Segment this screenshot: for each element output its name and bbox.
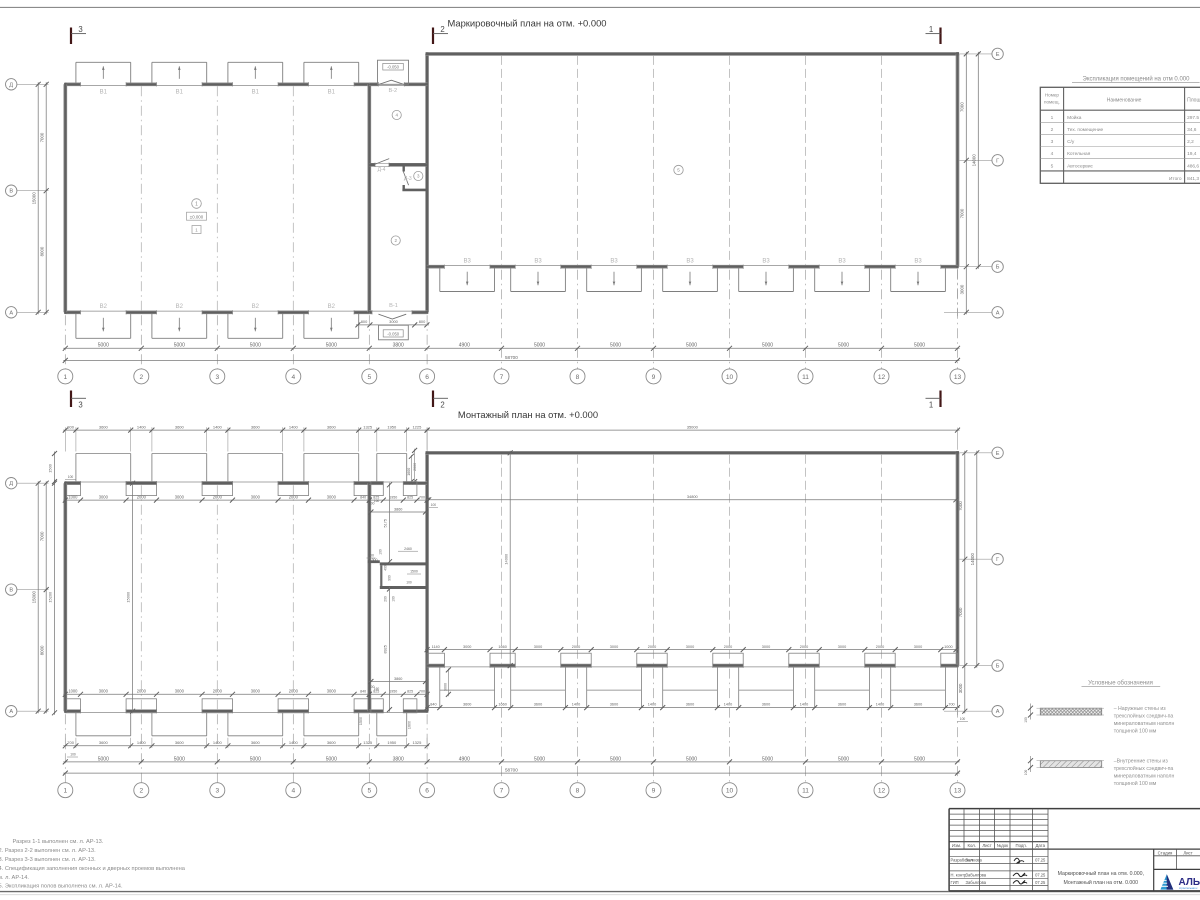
svg-text:Дата: Дата bbox=[1035, 843, 1045, 848]
svg-text:58700: 58700 bbox=[505, 768, 518, 773]
svg-text:100: 100 bbox=[960, 717, 966, 721]
svg-text:15000: 15000 bbox=[31, 192, 36, 205]
svg-text:3600: 3600 bbox=[686, 702, 694, 706]
svg-text:3000: 3000 bbox=[838, 645, 846, 649]
svg-text:100: 100 bbox=[68, 475, 74, 479]
svg-text:А: А bbox=[9, 310, 13, 316]
svg-text:3: 3 bbox=[78, 401, 82, 410]
svg-text:А: А bbox=[9, 709, 13, 715]
svg-text:трехслойных сэндвич-па: трехслойных сэндвич-па bbox=[1114, 713, 1174, 720]
svg-text:3000: 3000 bbox=[99, 688, 109, 693]
svg-text:3600: 3600 bbox=[175, 425, 185, 430]
svg-text:3800: 3800 bbox=[393, 343, 404, 349]
svg-text:1400: 1400 bbox=[289, 740, 299, 745]
svg-text:1500: 1500 bbox=[48, 463, 53, 472]
svg-text:В-2: В-2 bbox=[388, 88, 397, 94]
svg-text:3860: 3860 bbox=[394, 677, 402, 681]
svg-text:3000: 3000 bbox=[959, 284, 964, 294]
svg-text:5000: 5000 bbox=[326, 756, 337, 762]
svg-text:В3: В3 bbox=[914, 259, 922, 265]
svg-text:3000: 3000 bbox=[175, 688, 185, 693]
svg-text:3000: 3000 bbox=[762, 645, 770, 649]
svg-text:±0.000: ±0.000 bbox=[190, 214, 204, 219]
svg-text:строительная к: строительная к bbox=[1179, 887, 1198, 890]
svg-text:1950: 1950 bbox=[387, 425, 397, 430]
svg-text:8000: 8000 bbox=[39, 246, 44, 256]
svg-text:В1: В1 bbox=[100, 90, 108, 96]
svg-text:2000: 2000 bbox=[800, 645, 808, 649]
svg-text:2. Разрез 2-2 выполнен см. л.: 2. Разрез 2-2 выполнен см. л. АР-13. bbox=[0, 848, 96, 854]
svg-text:3000: 3000 bbox=[327, 495, 337, 500]
svg-text:трехслойных сэндвич-па: трехслойных сэндвич-па bbox=[1114, 765, 1174, 772]
svg-text:5: 5 bbox=[367, 788, 371, 795]
svg-text:А: А bbox=[996, 709, 1000, 715]
svg-text:1500: 1500 bbox=[359, 717, 363, 725]
svg-text:Номер: Номер bbox=[1045, 93, 1060, 98]
svg-text:2: 2 bbox=[139, 788, 143, 795]
svg-text:В2: В2 bbox=[100, 304, 108, 310]
svg-text:Б: Б bbox=[996, 664, 1000, 670]
svg-text:34800: 34800 bbox=[687, 494, 699, 499]
svg-text:толщиной 100 мм: толщиной 100 мм bbox=[1114, 728, 1157, 735]
svg-text:3000: 3000 bbox=[958, 683, 963, 693]
svg-text:Котельная: Котельная bbox=[1067, 151, 1091, 157]
svg-text:5000: 5000 bbox=[914, 756, 925, 762]
svg-text:5: 5 bbox=[677, 168, 680, 173]
svg-text:840: 840 bbox=[430, 702, 436, 706]
svg-text:1: 1 bbox=[929, 401, 933, 410]
svg-text:минераловатным наполн: минераловатным наполн bbox=[1114, 721, 1175, 727]
svg-text:Б: Б bbox=[996, 265, 1000, 271]
svg-text:840: 840 bbox=[360, 495, 366, 499]
svg-text:825: 825 bbox=[407, 689, 413, 693]
svg-text:7000: 7000 bbox=[39, 531, 44, 541]
svg-text:7000: 7000 bbox=[959, 102, 964, 112]
svg-text:1400: 1400 bbox=[213, 740, 223, 745]
svg-text:700: 700 bbox=[419, 496, 425, 500]
svg-text:14000: 14000 bbox=[970, 553, 975, 566]
svg-text:В3: В3 bbox=[762, 259, 770, 265]
svg-text:5000: 5000 bbox=[174, 756, 185, 762]
svg-text:1400: 1400 bbox=[876, 702, 884, 706]
svg-text:160: 160 bbox=[374, 687, 380, 691]
svg-text:Е: Е bbox=[996, 52, 1000, 58]
svg-text:м. л. АР-14.: м. л. АР-14. bbox=[0, 875, 29, 881]
svg-text:3: 3 bbox=[215, 788, 219, 795]
svg-text:3000: 3000 bbox=[463, 645, 471, 649]
svg-text:Стадия: Стадия bbox=[1158, 850, 1173, 855]
svg-text:6: 6 bbox=[425, 374, 429, 381]
svg-text:1660: 1660 bbox=[498, 702, 506, 706]
svg-text:2: 2 bbox=[1051, 127, 1054, 133]
svg-text:9: 9 bbox=[652, 374, 656, 381]
svg-text:3000: 3000 bbox=[99, 495, 109, 500]
svg-text:Изм.: Изм. bbox=[952, 843, 961, 848]
svg-text:6: 6 bbox=[425, 788, 429, 795]
svg-text:В-1: В-1 bbox=[389, 303, 398, 309]
svg-text:Условные обозначения: Условные обозначения bbox=[1088, 681, 1153, 687]
svg-text:200: 200 bbox=[384, 596, 388, 602]
svg-text:Итого: Итого bbox=[1169, 176, 1182, 182]
svg-text:В1: В1 bbox=[328, 90, 336, 96]
svg-text:9: 9 bbox=[652, 788, 656, 795]
svg-text:В2: В2 bbox=[176, 304, 184, 310]
svg-text:15000: 15000 bbox=[31, 591, 36, 604]
svg-text:8925: 8925 bbox=[384, 645, 388, 653]
svg-text:19,4: 19,4 bbox=[1187, 151, 1197, 157]
svg-text:1400: 1400 bbox=[213, 425, 223, 430]
svg-text:58700: 58700 bbox=[505, 355, 518, 360]
svg-text:помещ.: помещ. bbox=[1044, 100, 1060, 105]
svg-text:1400: 1400 bbox=[572, 702, 580, 706]
svg-text:Лист: Лист bbox=[982, 843, 991, 848]
svg-text:-0.050: -0.050 bbox=[387, 65, 400, 70]
svg-text:100: 100 bbox=[392, 596, 396, 602]
svg-text:5000: 5000 bbox=[914, 343, 925, 349]
svg-text:3600: 3600 bbox=[99, 425, 109, 430]
svg-text:В3: В3 bbox=[610, 259, 618, 265]
svg-text:С/у: С/у bbox=[1067, 139, 1075, 145]
svg-text:В3: В3 bbox=[464, 259, 472, 265]
svg-text:2460: 2460 bbox=[404, 547, 412, 551]
svg-text:-0.050: -0.050 bbox=[387, 331, 400, 336]
svg-text:3000: 3000 bbox=[444, 683, 448, 691]
svg-text:Забьялова: Забьялова bbox=[966, 873, 987, 878]
svg-text:5000: 5000 bbox=[250, 756, 261, 762]
svg-text:1500: 1500 bbox=[410, 570, 418, 574]
svg-text:825: 825 bbox=[407, 496, 413, 500]
svg-text:1000: 1000 bbox=[944, 645, 952, 649]
svg-text:700: 700 bbox=[67, 740, 74, 745]
svg-text:4: 4 bbox=[1051, 151, 1054, 157]
svg-text:5000: 5000 bbox=[534, 756, 545, 762]
svg-text:Монтажный план на отм. +0.000: Монтажный план на отм. +0.000 bbox=[458, 409, 598, 420]
svg-text:5. Экспликация полов выполнена: 5. Экспликация полов выполнена см. л. АР… bbox=[0, 884, 123, 890]
svg-text:1600: 1600 bbox=[407, 468, 411, 476]
svg-text:800: 800 bbox=[419, 319, 426, 324]
svg-text:5000: 5000 bbox=[762, 756, 773, 762]
svg-text:500: 500 bbox=[368, 554, 374, 558]
svg-text:2000: 2000 bbox=[289, 495, 299, 500]
svg-text:1400: 1400 bbox=[137, 425, 147, 430]
svg-text:34,6: 34,6 bbox=[1187, 127, 1197, 133]
svg-text:3: 3 bbox=[215, 374, 219, 381]
svg-text:В: В bbox=[9, 189, 13, 195]
svg-text:Площадь: Площадь bbox=[1187, 98, 1200, 104]
svg-text:2: 2 bbox=[440, 401, 444, 410]
svg-text:3: 3 bbox=[78, 25, 82, 34]
svg-text:3000: 3000 bbox=[327, 688, 337, 693]
svg-text:8: 8 bbox=[576, 374, 580, 381]
svg-text:10: 10 bbox=[726, 788, 734, 795]
svg-text:1000: 1000 bbox=[68, 495, 78, 500]
svg-text:100: 100 bbox=[1024, 770, 1028, 776]
svg-text:2: 2 bbox=[440, 25, 444, 34]
svg-text:1: 1 bbox=[1051, 115, 1054, 121]
svg-text:Мойка: Мойка bbox=[1067, 114, 1082, 121]
svg-text:1: 1 bbox=[195, 201, 198, 207]
svg-text:3600: 3600 bbox=[251, 425, 261, 430]
svg-text:3600: 3600 bbox=[327, 740, 337, 745]
svg-text:1000: 1000 bbox=[68, 688, 78, 693]
svg-text:Подп.: Подп. bbox=[1015, 843, 1026, 848]
svg-text:В: В bbox=[9, 588, 13, 594]
svg-text:300: 300 bbox=[372, 558, 378, 562]
svg-text:1325: 1325 bbox=[363, 740, 373, 745]
svg-text:минераловатным наполн: минераловатным наполн bbox=[1114, 774, 1175, 780]
svg-text:12: 12 bbox=[878, 374, 886, 381]
svg-text:100: 100 bbox=[70, 753, 76, 757]
svg-text:Забьялова: Забьялова bbox=[966, 880, 987, 885]
svg-text:Разрез 1-1 выполнен см. л. АР-: Разрез 1-1 выполнен см. л. АР-13. bbox=[13, 839, 104, 845]
svg-text:5000: 5000 bbox=[686, 756, 697, 762]
svg-text:Д: Д bbox=[9, 481, 13, 487]
svg-text:13: 13 bbox=[954, 374, 962, 381]
svg-text:3600: 3600 bbox=[914, 702, 922, 706]
svg-text:толщиной 100 мм: толщиной 100 мм bbox=[1114, 780, 1157, 787]
svg-text:2000: 2000 bbox=[648, 645, 656, 649]
svg-text:Тех. помещение: Тех. помещение bbox=[1067, 127, 1103, 133]
svg-text:В1: В1 bbox=[176, 90, 184, 96]
svg-text:Г: Г bbox=[996, 158, 999, 164]
svg-text:13: 13 bbox=[954, 788, 962, 795]
svg-text:3. Разрез 3-3 выполнен см. л.: 3. Разрез 3-3 выполнен см. л. АР-13. bbox=[0, 857, 96, 863]
svg-text:1140: 1140 bbox=[432, 645, 440, 649]
svg-text:3000: 3000 bbox=[534, 645, 542, 649]
svg-text:100: 100 bbox=[431, 503, 437, 507]
svg-text:5000: 5000 bbox=[762, 343, 773, 349]
svg-text:07.25: 07.25 bbox=[1035, 873, 1046, 878]
svg-text:3000: 3000 bbox=[251, 495, 261, 500]
svg-text:2000: 2000 bbox=[137, 688, 147, 693]
svg-text:800: 800 bbox=[361, 319, 368, 324]
svg-text:–Внутренние стены из: –Внутренние стены из bbox=[1114, 759, 1169, 765]
svg-text:8: 8 bbox=[576, 788, 580, 795]
svg-text:5000: 5000 bbox=[610, 343, 621, 349]
svg-text:07.25: 07.25 bbox=[1035, 858, 1046, 863]
svg-text:1400: 1400 bbox=[800, 702, 808, 706]
svg-text:Кол.: Кол. bbox=[967, 843, 976, 848]
svg-text:2000: 2000 bbox=[876, 645, 884, 649]
svg-text:1660: 1660 bbox=[498, 645, 506, 649]
svg-text:800: 800 bbox=[67, 425, 74, 430]
svg-text:1325: 1325 bbox=[363, 425, 373, 430]
svg-text:4. Спецификация заполнения око: 4. Спецификация заполнения оконных и две… bbox=[0, 866, 186, 872]
svg-text:2000: 2000 bbox=[724, 645, 732, 649]
svg-text:10: 10 bbox=[726, 374, 734, 381]
svg-text:5000: 5000 bbox=[98, 756, 109, 762]
svg-text:В3: В3 bbox=[534, 259, 542, 265]
svg-text:– Наружные стены из: – Наружные стены из bbox=[1114, 706, 1167, 712]
svg-text:№док: №док bbox=[997, 843, 1009, 848]
svg-text:3800: 3800 bbox=[393, 756, 404, 762]
svg-text:3600: 3600 bbox=[175, 740, 185, 745]
svg-text:4900: 4900 bbox=[459, 756, 470, 762]
svg-text:Бычкова: Бычкова bbox=[966, 858, 983, 863]
svg-text:Наименование: Наименование bbox=[1107, 98, 1142, 104]
svg-text:1: 1 bbox=[63, 374, 67, 381]
svg-text:7000: 7000 bbox=[958, 607, 963, 617]
svg-text:5000: 5000 bbox=[250, 343, 261, 349]
svg-text:3000: 3000 bbox=[389, 319, 398, 324]
svg-text:2000: 2000 bbox=[213, 495, 223, 500]
svg-text:Маркировочный план на отм. 0.0: Маркировочный план на отм. 0.000, bbox=[1058, 870, 1144, 877]
svg-text:В3: В3 bbox=[686, 259, 694, 265]
svg-text:3000: 3000 bbox=[914, 645, 922, 649]
svg-text:11: 11 bbox=[802, 788, 809, 795]
svg-text:В3: В3 bbox=[838, 259, 846, 265]
svg-text:Экспликация помещений на отм 0: Экспликация помещений на отм 0.000 bbox=[1083, 75, 1191, 82]
svg-text:100: 100 bbox=[1024, 717, 1028, 723]
svg-text:3600: 3600 bbox=[762, 702, 770, 706]
svg-text:Д-4: Д-4 bbox=[378, 167, 386, 173]
svg-text:Д-3: Д-3 bbox=[404, 176, 412, 182]
svg-text:7: 7 bbox=[500, 374, 504, 381]
svg-text:35000: 35000 bbox=[687, 425, 699, 430]
svg-text:3000: 3000 bbox=[610, 645, 618, 649]
svg-text:2,2: 2,2 bbox=[1187, 139, 1194, 145]
svg-text:4: 4 bbox=[291, 374, 295, 381]
svg-text:3600: 3600 bbox=[463, 702, 471, 706]
svg-text:5: 5 bbox=[1051, 163, 1054, 169]
svg-text:Г: Г bbox=[996, 557, 999, 563]
svg-text:3000: 3000 bbox=[175, 495, 185, 500]
svg-text:1950: 1950 bbox=[389, 689, 397, 693]
svg-text:1400: 1400 bbox=[724, 702, 732, 706]
svg-text:Маркировочный план на отм. +0.: Маркировочный план на отм. +0.000 bbox=[447, 18, 606, 29]
svg-text:А: А bbox=[996, 310, 1000, 316]
svg-text:В2: В2 bbox=[252, 304, 260, 310]
svg-text:7000: 7000 bbox=[958, 501, 963, 511]
svg-text:8000: 8000 bbox=[39, 645, 44, 655]
svg-text:В2: В2 bbox=[328, 304, 336, 310]
svg-text:2: 2 bbox=[139, 374, 143, 381]
svg-text:5000: 5000 bbox=[326, 343, 337, 349]
svg-text:4: 4 bbox=[291, 788, 295, 795]
svg-text:3000: 3000 bbox=[686, 645, 694, 649]
svg-text:5000: 5000 bbox=[174, 343, 185, 349]
svg-text:Е: Е bbox=[996, 451, 1000, 457]
svg-text:7: 7 bbox=[500, 788, 504, 795]
svg-text:840: 840 bbox=[360, 689, 366, 693]
svg-text:2000: 2000 bbox=[137, 495, 147, 500]
svg-text:3000: 3000 bbox=[251, 688, 261, 693]
svg-text:Н. контр: Н. контр bbox=[951, 873, 967, 878]
svg-text:3860: 3860 bbox=[394, 507, 402, 511]
svg-text:1: 1 bbox=[63, 788, 67, 795]
svg-text:1225: 1225 bbox=[412, 425, 422, 430]
svg-text:297.5: 297.5 bbox=[1187, 115, 1199, 121]
svg-text:1: 1 bbox=[929, 25, 933, 34]
svg-text:12: 12 bbox=[878, 788, 886, 795]
svg-text:400: 400 bbox=[384, 565, 388, 571]
svg-text:3600: 3600 bbox=[327, 425, 337, 430]
svg-text:1600: 1600 bbox=[407, 721, 411, 729]
svg-text:5000: 5000 bbox=[534, 343, 545, 349]
svg-text:7000: 7000 bbox=[959, 208, 964, 218]
svg-text:5000: 5000 bbox=[838, 343, 849, 349]
svg-text:7000: 7000 bbox=[39, 132, 44, 142]
svg-text:15000: 15000 bbox=[126, 591, 131, 603]
svg-text:100: 100 bbox=[379, 549, 383, 555]
svg-text:2000: 2000 bbox=[289, 688, 299, 693]
svg-text:3600: 3600 bbox=[251, 740, 261, 745]
svg-text:1400: 1400 bbox=[289, 425, 299, 430]
svg-text:5000: 5000 bbox=[98, 343, 109, 349]
svg-text:4900: 4900 bbox=[459, 343, 470, 349]
svg-text:07.25: 07.25 bbox=[1035, 880, 1046, 885]
svg-text:3600: 3600 bbox=[99, 740, 109, 745]
svg-text:ГИП: ГИП bbox=[951, 880, 959, 885]
svg-text:900: 900 bbox=[388, 575, 392, 581]
svg-text:100: 100 bbox=[406, 581, 412, 585]
svg-text:14000: 14000 bbox=[503, 553, 508, 565]
svg-text:В1: В1 bbox=[252, 90, 260, 96]
svg-text:5000: 5000 bbox=[686, 343, 697, 349]
svg-text:841,3: 841,3 bbox=[1187, 176, 1199, 182]
svg-text:15200: 15200 bbox=[48, 591, 53, 603]
svg-text:1400: 1400 bbox=[648, 702, 656, 706]
svg-text:5: 5 bbox=[367, 374, 371, 381]
svg-text:Лист: Лист bbox=[1183, 850, 1192, 855]
svg-text:1950: 1950 bbox=[387, 740, 397, 745]
svg-text:2000: 2000 bbox=[572, 645, 580, 649]
svg-text:2000: 2000 bbox=[213, 688, 223, 693]
svg-text:1325: 1325 bbox=[412, 740, 422, 745]
svg-text:5175: 5175 bbox=[384, 519, 388, 527]
svg-text:1400: 1400 bbox=[137, 740, 147, 745]
svg-text:3600: 3600 bbox=[838, 702, 846, 706]
svg-text:5000: 5000 bbox=[610, 756, 621, 762]
svg-text:14000: 14000 bbox=[971, 154, 976, 167]
svg-text:Д: Д bbox=[9, 82, 13, 88]
svg-text:486,6: 486,6 bbox=[1187, 163, 1199, 169]
svg-text:11: 11 bbox=[802, 374, 809, 381]
svg-text:Монтажный план на отм. 0.000: Монтажный план на отм. 0.000 bbox=[1064, 879, 1139, 886]
svg-text:5000: 5000 bbox=[838, 756, 849, 762]
svg-text:700: 700 bbox=[948, 702, 954, 706]
svg-text:Автосервис: Автосервис bbox=[1067, 163, 1093, 169]
svg-text:3600: 3600 bbox=[534, 702, 542, 706]
svg-text:3: 3 bbox=[1051, 139, 1054, 145]
svg-text:3600: 3600 bbox=[610, 702, 618, 706]
svg-text:700: 700 bbox=[419, 689, 425, 693]
svg-text:1950: 1950 bbox=[389, 496, 397, 500]
svg-text:160: 160 bbox=[374, 499, 380, 503]
